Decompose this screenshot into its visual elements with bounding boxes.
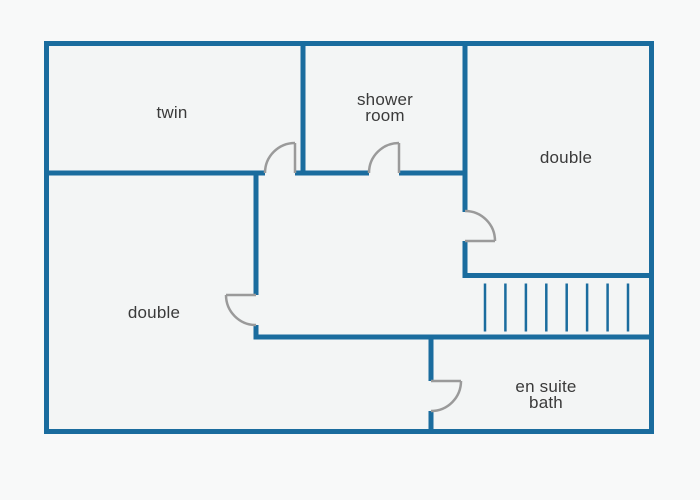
room-label-double-right: double [540, 148, 592, 167]
room-label-double-left: double [128, 303, 180, 322]
room-label-shower-line2: room [365, 106, 405, 125]
floor-area [44, 41, 654, 434]
room-label-ensuite-line2: bath [529, 393, 563, 412]
floor-plan-canvas: twin shower room double double en suite … [0, 0, 700, 500]
floor-plan: twin shower room double double en suite … [0, 0, 700, 500]
room-label-twin: twin [156, 103, 187, 122]
